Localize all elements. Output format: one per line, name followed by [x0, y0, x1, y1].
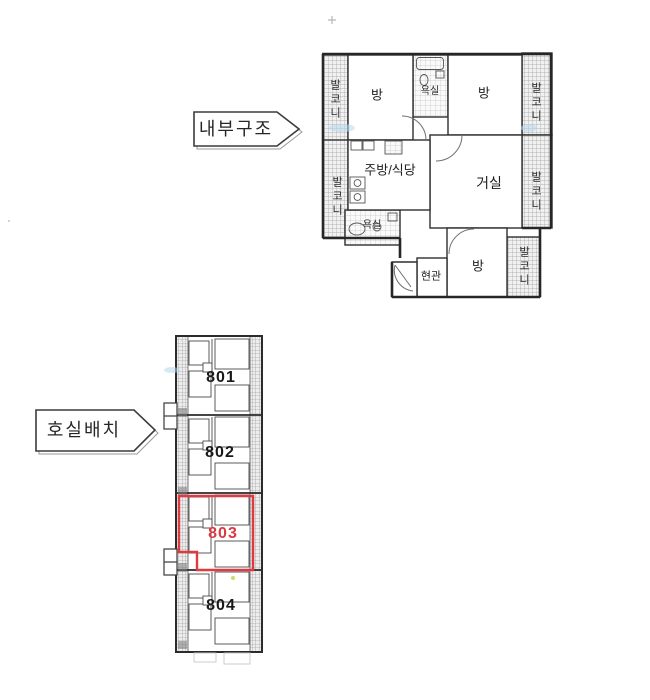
floorplan-linework — [0, 0, 650, 700]
label-balcony-left: 발코니 — [331, 176, 342, 218]
label-kitchen-dining: 주방/식당 — [364, 164, 415, 177]
unit-layout-callout-label: 호실배치 — [47, 421, 121, 439]
yellow-speck — [231, 576, 235, 580]
faint-lines — [194, 653, 250, 664]
label-entrance: 현관 — [421, 272, 441, 283]
label-bathroom-bottom: 욕실 — [363, 221, 381, 231]
unit-number-804: 804 — [206, 598, 236, 614]
label-room-top-left: 방 — [371, 89, 383, 102]
label-room-bottom: 방 — [472, 260, 484, 273]
unit-number-801: 801 — [206, 370, 236, 386]
entry-porch — [392, 262, 417, 297]
scan-smudge — [164, 367, 180, 373]
label-balcony-right-top: 발코니 — [530, 82, 541, 124]
label-balcony-right-mid: 발코니 — [530, 171, 541, 213]
label-bathroom-top: 욕실 — [421, 87, 439, 97]
label-living-room: 거실 — [476, 176, 502, 190]
balcony-column — [250, 337, 261, 651]
unit-number-803: 803 — [208, 526, 238, 542]
unit-number-802: 802 — [205, 445, 235, 461]
label-balcony-bottom-right: 발코니 — [518, 246, 529, 288]
label-room-top-right: 방 — [478, 87, 490, 100]
internal-structure-callout-label: 내부구조 — [199, 120, 273, 138]
scanned-floorplan-page: 내부구조 호실배치 발코니 방 욕실 방 발코니 주방/식당 거실 발코니 발코… — [0, 0, 650, 700]
label-balcony-top-left: 발코니 — [329, 79, 340, 121]
